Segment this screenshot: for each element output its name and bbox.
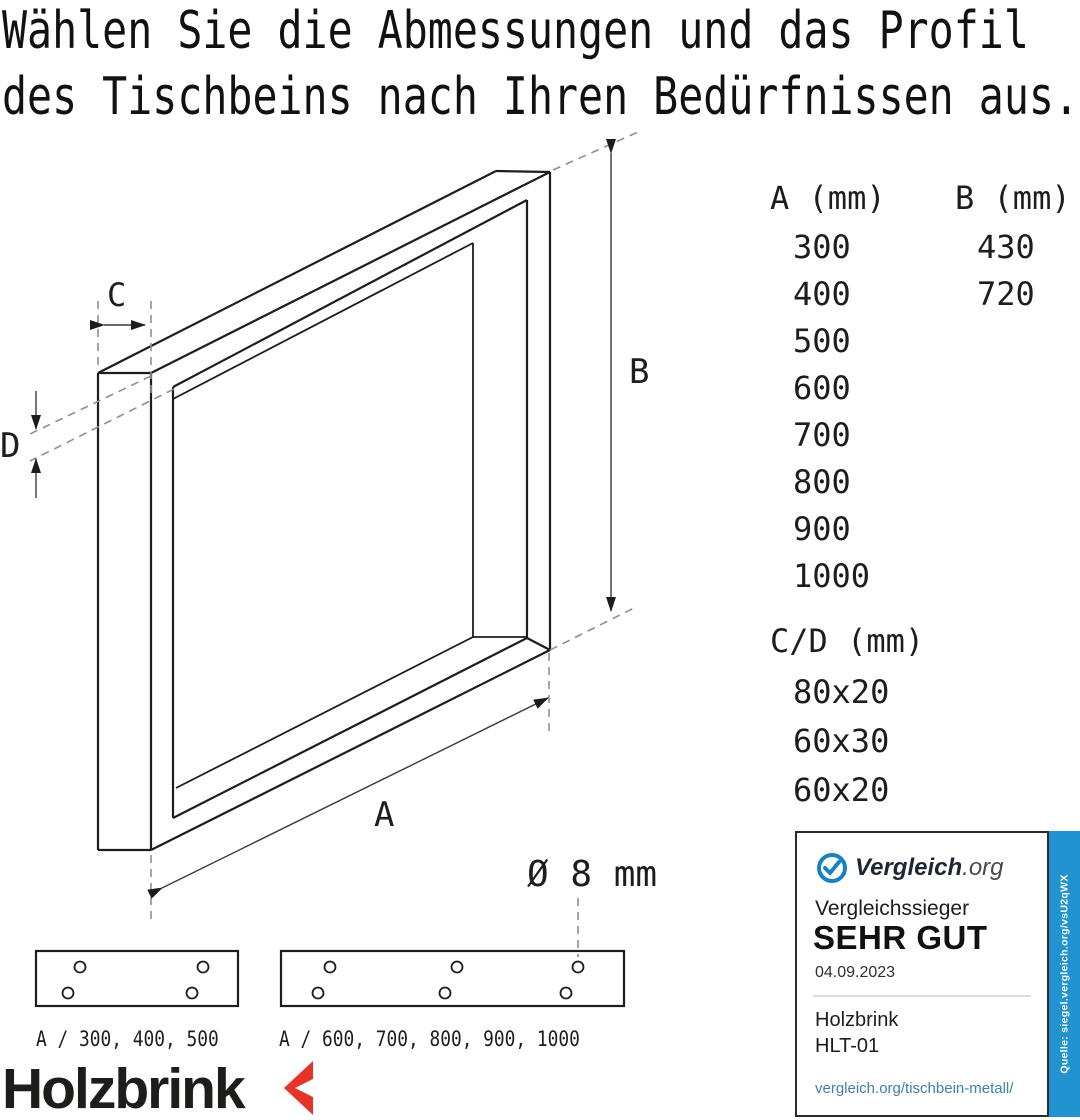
column-a-header: A (mm) (770, 179, 886, 217)
dimension-label-c: C (107, 276, 126, 314)
column-cd-value: 80x20 (793, 673, 889, 711)
badge-product-brand: Holzbrink (815, 1009, 898, 1032)
mounting-plate-small (36, 951, 238, 1006)
mounting-plate-large (281, 951, 624, 1006)
plate-small-caption: A / 300, 400, 500 (36, 1027, 219, 1051)
vergleich-award-badge: Vergleich.org Vergleichssieger SEHR GUT … (795, 831, 1049, 1117)
leg-frame-outline (98, 171, 550, 850)
leg-frame-inner-edges (173, 243, 527, 788)
column-cd-value: 60x30 (793, 722, 889, 760)
vergleich-wordmark-bold: Vergleich (855, 854, 962, 881)
column-a-value: 700 (793, 416, 851, 454)
badge-url-link: vergleich.org/tischbein-metall/ (815, 1080, 1013, 1097)
headline-line-2: des Tischbeins nach Ihren Bedürfnissen a… (2, 67, 1079, 127)
dimension-label-d: D (0, 426, 20, 466)
column-a-value: 400 (793, 275, 851, 313)
column-a-value: 900 (793, 510, 851, 548)
headline-line-1: Wählen Sie die Abmessungen und das Profi… (2, 1, 1029, 61)
column-b-value: 430 (977, 228, 1035, 266)
column-b-value: 720 (977, 275, 1035, 313)
award-date: 04.09.2023 (815, 964, 895, 982)
dimension-label-b: B (629, 352, 649, 392)
column-a-value: 600 (793, 369, 851, 407)
badge-source-strip: Quelle: siegel.vergleich.org/vsU2qWX (1049, 831, 1080, 1117)
column-cd-value: 60x20 (793, 771, 889, 809)
column-a-value: 1000 (793, 557, 870, 595)
vergleich-wordmark: Vergleich.org (855, 854, 1004, 882)
column-b-header: B (mm) (955, 179, 1071, 217)
hole-diameter-label: Ø 8 mm (527, 854, 657, 895)
product-infographic: Wählen Sie die Abmessungen und das Profi… (0, 0, 1080, 1120)
logo-chevron-icon (284, 1061, 313, 1115)
badge-divider (813, 995, 1031, 997)
vergleich-check-icon (816, 852, 848, 884)
dashed-extension-lines (30, 132, 638, 957)
column-a-value: 300 (793, 228, 851, 266)
vergleich-wordmark-suffix: .org (962, 854, 1003, 881)
dimension-label-a: A (374, 795, 394, 835)
badge-source-note: Quelle: siegel.vergleich.org/vsU2qWX (1059, 874, 1071, 1073)
plate-large-caption: A / 600, 700, 800, 900, 1000 (279, 1027, 580, 1051)
column-a-value: 500 (793, 322, 851, 360)
award-type-label: Vergleichssieger (815, 897, 969, 921)
badge-product-model: HLT-01 (815, 1035, 879, 1058)
holzbrink-logo: Holzbrink (2, 1056, 244, 1120)
award-grade: SEHR GUT (813, 919, 988, 957)
column-a-value: 800 (793, 463, 851, 501)
column-cd-header: C/D (mm) (770, 622, 924, 660)
